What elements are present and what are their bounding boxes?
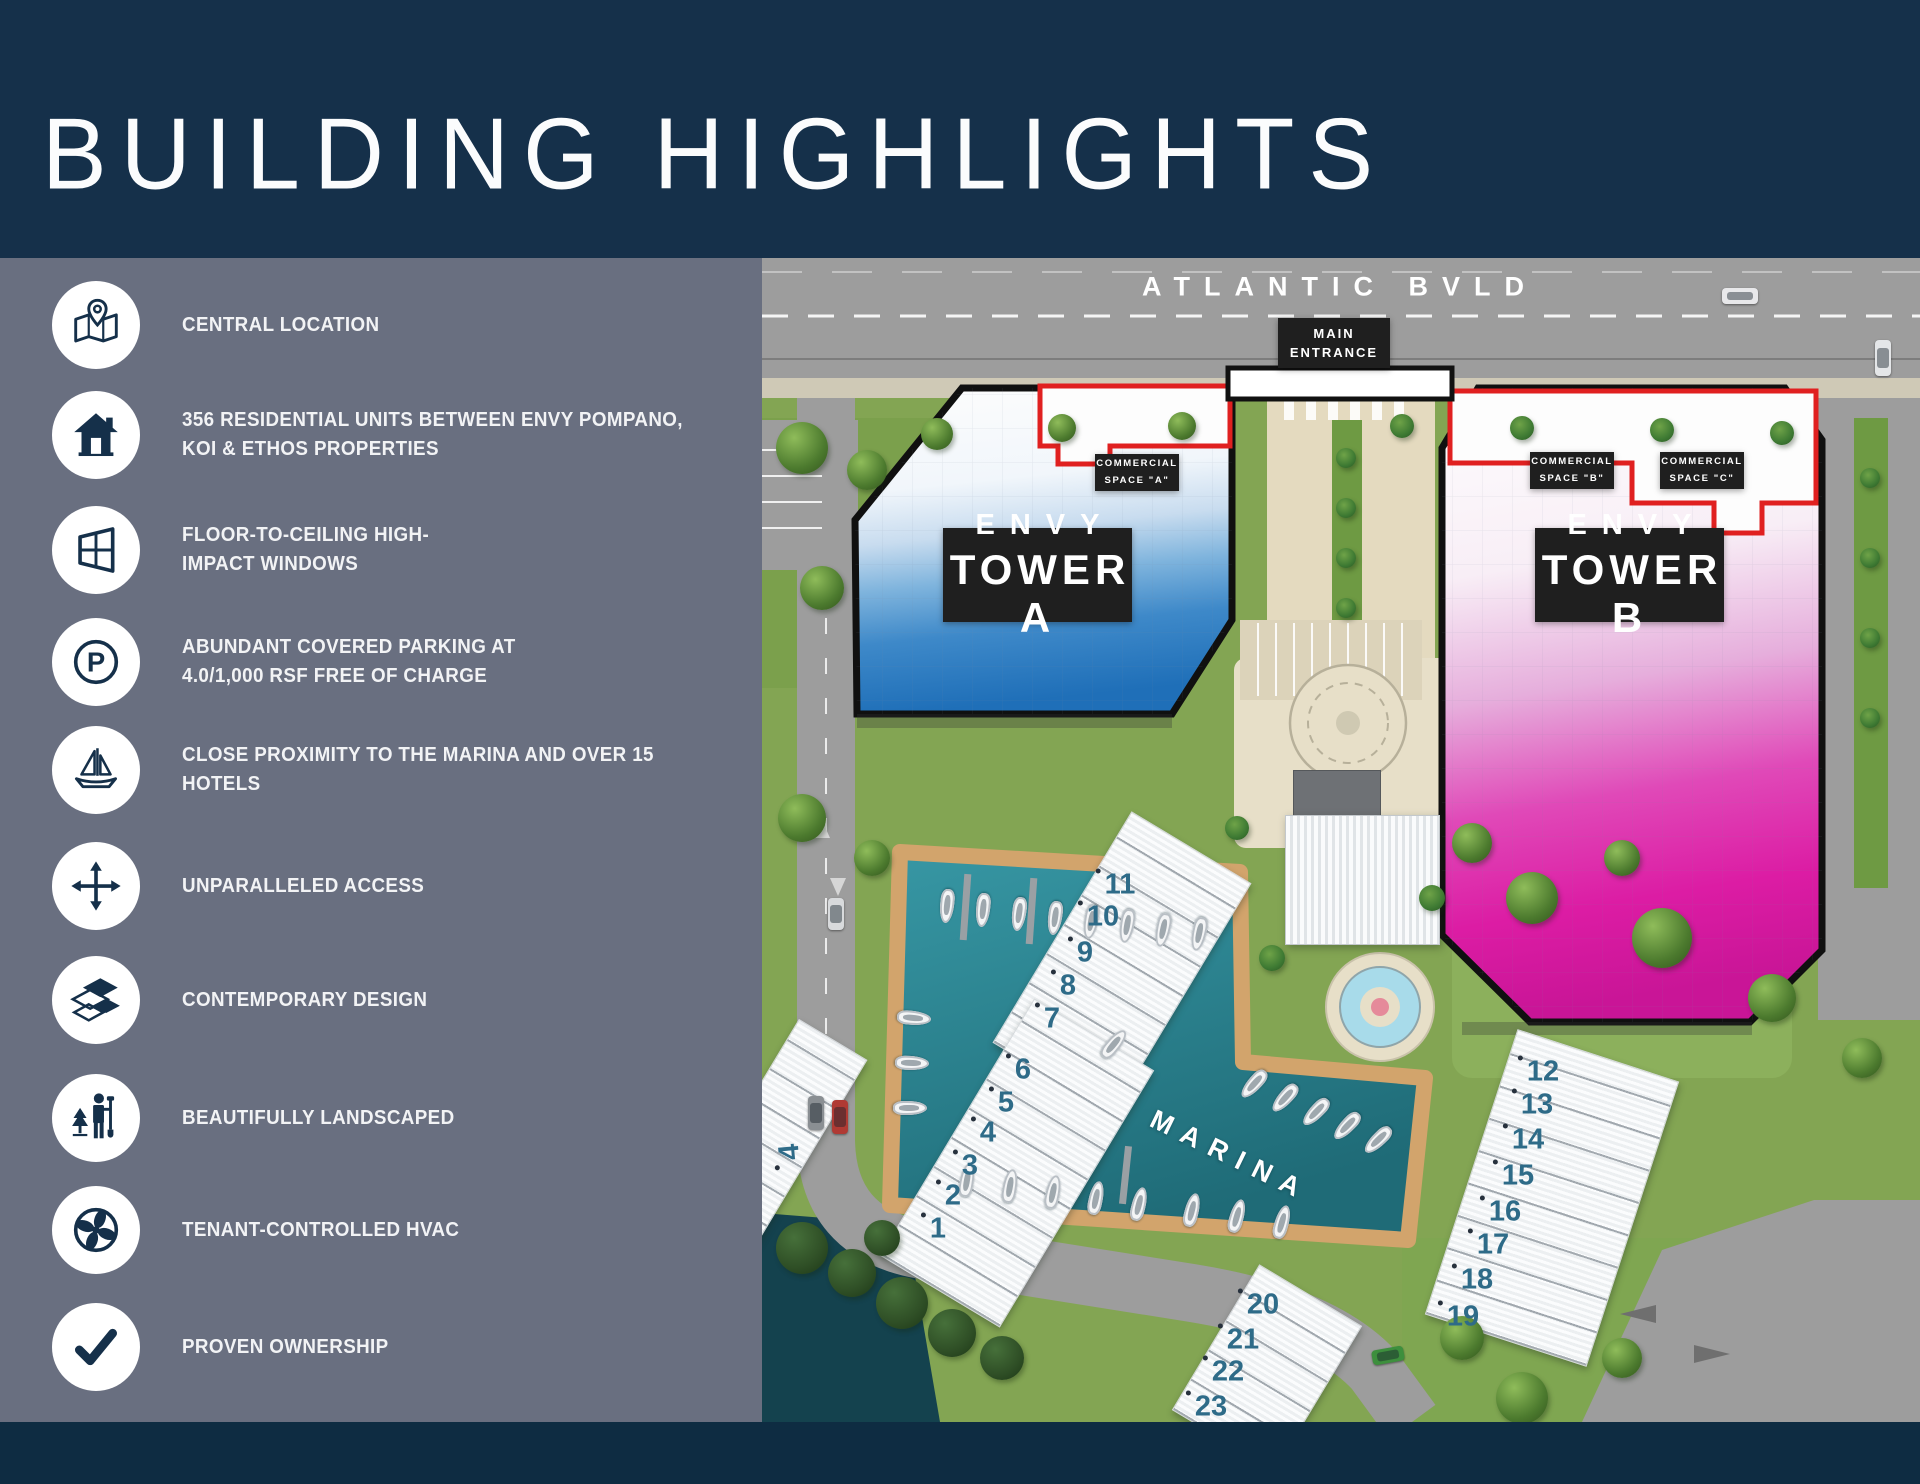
floor-tiles-icon [52, 956, 140, 1044]
tree-icon [1602, 1338, 1642, 1378]
tree-icon [864, 1220, 900, 1256]
house-icon [52, 391, 140, 479]
commercial-space-c-label: COMMERCIAL SPACE "C" [1660, 452, 1744, 489]
parking-icon: P [52, 618, 140, 706]
palm-tree-icon [1650, 418, 1674, 442]
header: BUILDING HIGHLIGHTS [0, 0, 1920, 258]
checkmark-icon [52, 1303, 140, 1391]
unit-number: 16 [1489, 1196, 1521, 1229]
feature-label: TENANT-CONTROLLED HVAC [182, 1216, 459, 1245]
feature-central-location: CENTRAL LOCATION [52, 281, 392, 369]
tree-icon [854, 840, 890, 876]
unit-number: 10 [1087, 901, 1119, 934]
map-location-icon [52, 281, 140, 369]
tree-icon [776, 1222, 828, 1274]
site-plan-map: ATLANTIC BVLD MAIN ENTRANCE COMMERCIAL S… [762, 258, 1920, 1422]
footer-bar [0, 1422, 1920, 1484]
feature-label: BEAUTIFULLY LANDSCAPED [182, 1104, 455, 1133]
unit-number: 1 [930, 1213, 946, 1246]
unit-number: 9 [1077, 937, 1093, 970]
tree-icon [980, 1336, 1024, 1380]
unit-number: 14 [1512, 1124, 1544, 1157]
tree-icon [800, 566, 844, 610]
palm-tree-icon [1336, 548, 1356, 568]
feature-landscaped: BEAUTIFULLY LANDSCAPED [52, 1074, 472, 1162]
unit-number: 22 [1212, 1356, 1244, 1389]
move-arrows-icon [52, 842, 140, 930]
unit-number: 12 [1527, 1056, 1559, 1089]
unit-number: 6 [1015, 1054, 1031, 1087]
car-icon [1875, 340, 1891, 376]
tree-icon [1748, 974, 1796, 1022]
car-icon [808, 1096, 824, 1130]
feature-residential-units: 356 RESIDENTIAL UNITS BETWEEN ENVY POMPA… [52, 391, 715, 479]
fan-icon [52, 1186, 140, 1274]
unit-number: 11 [1105, 869, 1136, 902]
tree-icon [876, 1277, 928, 1329]
window-icon [52, 506, 140, 594]
palm-tree-icon [1259, 945, 1285, 971]
palm-tree-icon [1225, 816, 1249, 840]
feature-label: PROVEN OWNERSHIP [182, 1333, 389, 1362]
unit-number: 4 [980, 1117, 996, 1150]
brochure-page: BUILDING HIGHLIGHTS CENTRAL LOCATION 356 [0, 0, 1920, 1484]
parking-letter: P [87, 646, 105, 677]
sidebar: CENTRAL LOCATION 356 RESIDENTIAL UNITS B… [0, 258, 762, 1422]
tree-icon [1842, 1038, 1882, 1078]
feature-label: UNPARALLELED ACCESS [182, 872, 424, 901]
tree-icon [847, 450, 887, 490]
unit-number: 3 [962, 1150, 978, 1183]
feature-label: 356 RESIDENTIAL UNITS BETWEEN ENVY POMPA… [182, 406, 683, 464]
palm-tree-icon [1336, 448, 1356, 468]
palm-tree-icon [1860, 548, 1880, 568]
landscaping-icon [52, 1074, 140, 1162]
feature-ownership: PROVEN OWNERSHIP [52, 1303, 402, 1391]
unit-number: 20 [1247, 1289, 1279, 1322]
main-entrance-label: MAIN ENTRANCE [1278, 318, 1390, 368]
feature-label: CONTEMPORARY DESIGN [182, 986, 427, 1015]
palm-tree-icon [1510, 416, 1534, 440]
feature-hvac: TENANT-CONTROLLED HVAC [52, 1186, 477, 1274]
palm-tree-icon [1390, 414, 1414, 438]
tree-icon [1506, 872, 1558, 924]
palm-tree-icon [1336, 598, 1356, 618]
tree-icon [928, 1309, 976, 1357]
clubhouse-building [1285, 815, 1440, 945]
unit-number: 4 [773, 1143, 807, 1162]
tower-a-label: ENVY TOWER A [943, 528, 1132, 622]
unit-number: 17 [1477, 1229, 1509, 1262]
commercial-space-a-label: COMMERCIAL SPACE "A" [1095, 454, 1179, 491]
unit-number: 8 [1060, 970, 1076, 1003]
feature-label: CLOSE PROXIMITY TO THE MARINA AND OVER 1… [182, 741, 654, 799]
feature-label: FLOOR-TO-CEILING HIGH- IMPACT WINDOWS [182, 521, 429, 579]
car-icon [832, 1100, 848, 1134]
tower-b-label: ENVY TOWER B [1535, 528, 1724, 622]
feature-label: CENTRAL LOCATION [182, 311, 379, 340]
unit-number: 21 [1227, 1324, 1259, 1357]
tower-a-designation: TOWER A [943, 546, 1132, 642]
unit-number: 19 [1447, 1301, 1479, 1334]
unit-number: 13 [1521, 1089, 1553, 1122]
tree-icon [1496, 1372, 1548, 1422]
street-label: ATLANTIC BVLD [1142, 272, 1538, 303]
unit-number: 15 [1502, 1160, 1534, 1193]
palm-tree-icon [1770, 421, 1794, 445]
tower-a-name: ENVY [961, 509, 1115, 542]
tree-icon [1604, 840, 1640, 876]
unit-number: 5 [998, 1087, 1014, 1120]
palm-tree-icon [1860, 708, 1880, 728]
tree-icon [1452, 823, 1492, 863]
unit-number: 23 [1195, 1391, 1227, 1423]
unit-number: 2 [945, 1180, 961, 1213]
tower-b-name: ENVY [1553, 509, 1707, 542]
palm-tree-icon [1860, 628, 1880, 648]
commercial-space-b-label: COMMERCIAL SPACE "B" [1530, 452, 1614, 489]
tree-icon [828, 1249, 876, 1297]
feature-marina-proximity: CLOSE PROXIMITY TO THE MARINA AND OVER 1… [52, 726, 684, 814]
tree-icon [1168, 412, 1196, 440]
page-title: BUILDING HIGHLIGHTS [42, 96, 1387, 212]
unit-number: 18 [1461, 1264, 1493, 1297]
palm-tree-icon [1419, 885, 1445, 911]
unit-number: 7 [1044, 1003, 1060, 1036]
tree-icon [1632, 908, 1692, 968]
palm-tree-icon [1860, 468, 1880, 488]
tree-icon [778, 794, 826, 842]
tree-icon [1048, 414, 1076, 442]
car-icon [1722, 288, 1758, 304]
tower-b-designation: TOWER B [1535, 546, 1724, 642]
feature-windows: FLOOR-TO-CEILING HIGH- IMPACT WINDOWS [52, 506, 445, 594]
palm-tree-icon [1336, 498, 1356, 518]
feature-label: ABUNDANT COVERED PARKING AT 4.0/1,000 RS… [182, 633, 516, 691]
feature-design: CONTEMPORARY DESIGN [52, 956, 443, 1044]
feature-access: UNPARALLELED ACCESS [52, 842, 440, 930]
car-icon [828, 898, 844, 930]
feature-parking: P ABUNDANT COVERED PARKING AT 4.0/1,000 … [52, 618, 537, 706]
tree-icon [921, 418, 953, 450]
tree-icon [776, 422, 828, 474]
sailboat-icon [52, 726, 140, 814]
